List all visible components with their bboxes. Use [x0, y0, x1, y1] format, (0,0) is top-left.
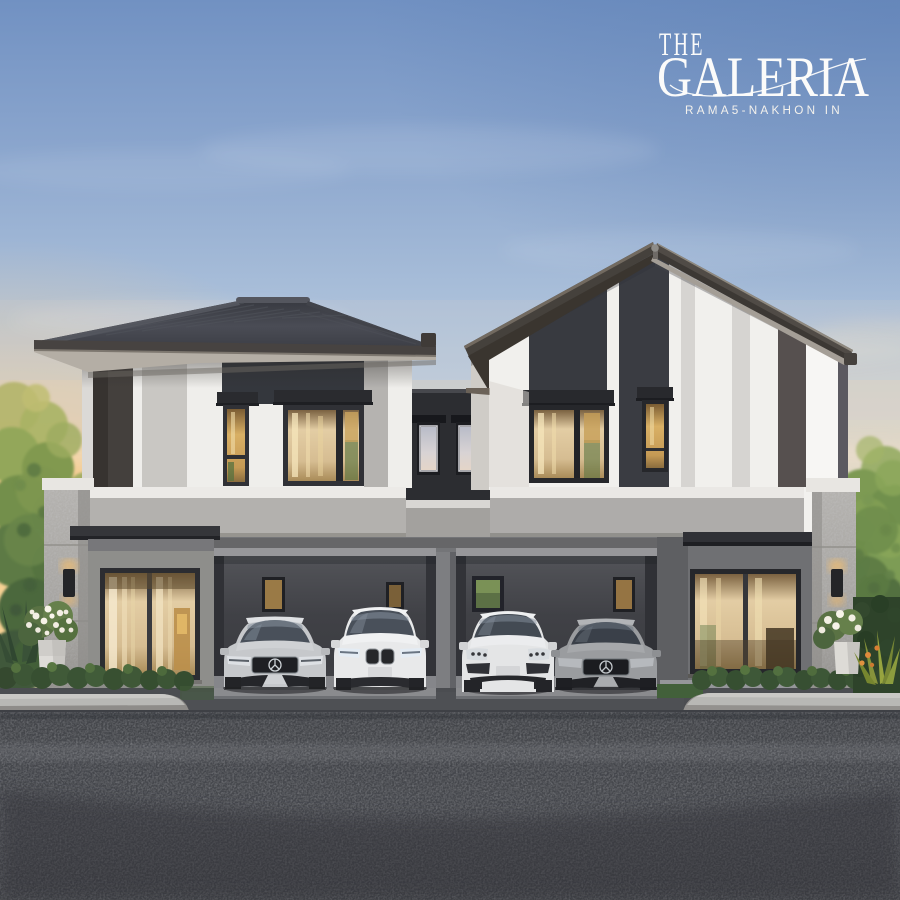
- svg-text:RAMA5-NAKHON IN: RAMA5-NAKHON IN: [685, 105, 843, 117]
- svg-text:GALERIA: GALERIA: [657, 46, 869, 109]
